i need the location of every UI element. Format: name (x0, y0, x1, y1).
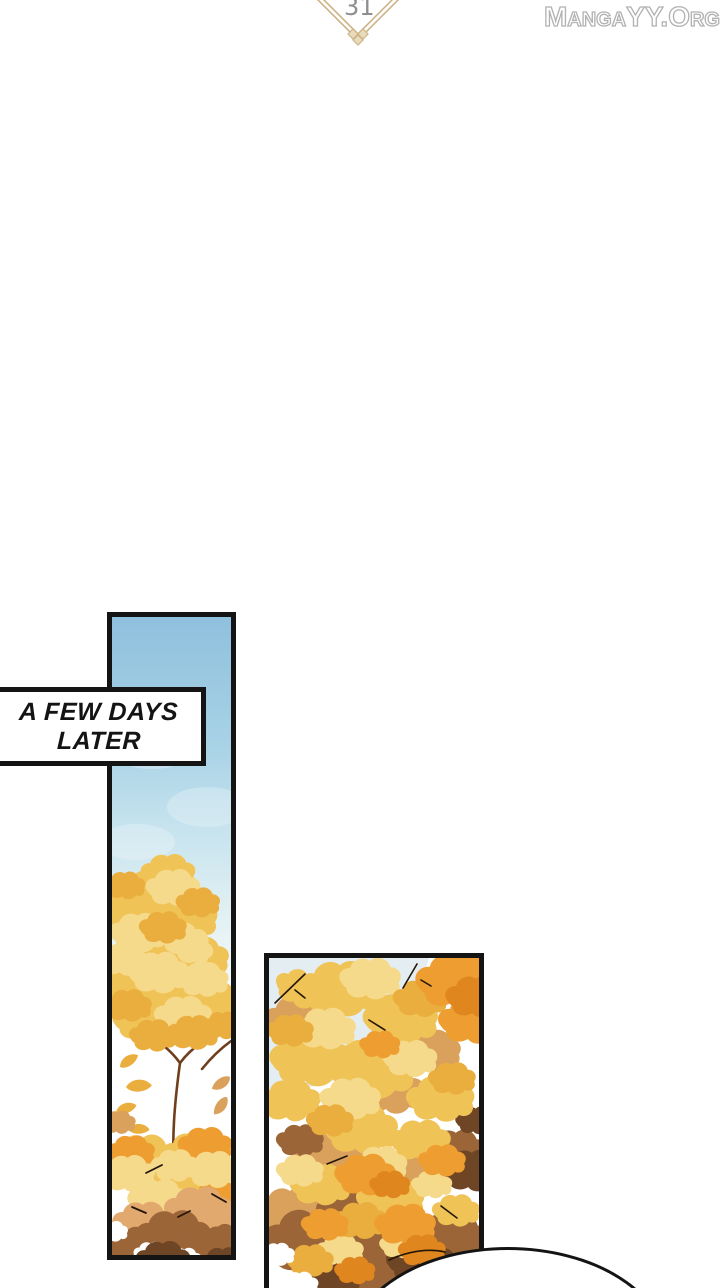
chapter-number: 31 (344, 0, 375, 21)
diamond-tip-ornament (348, 29, 368, 45)
site-watermark: MangaYY.Org (536, 1, 720, 33)
manga-page: 31 MangaYY.Org (0, 0, 720, 1288)
caption-box: A FEW DAYS LATER (0, 687, 206, 766)
caption-line-1: A FEW DAYS (19, 698, 179, 727)
caption-line-2: LATER (56, 727, 141, 756)
chapter-number-ornament: 31 (290, 0, 430, 55)
panel-2-artwork (269, 958, 479, 1288)
panel-2 (264, 953, 484, 1288)
